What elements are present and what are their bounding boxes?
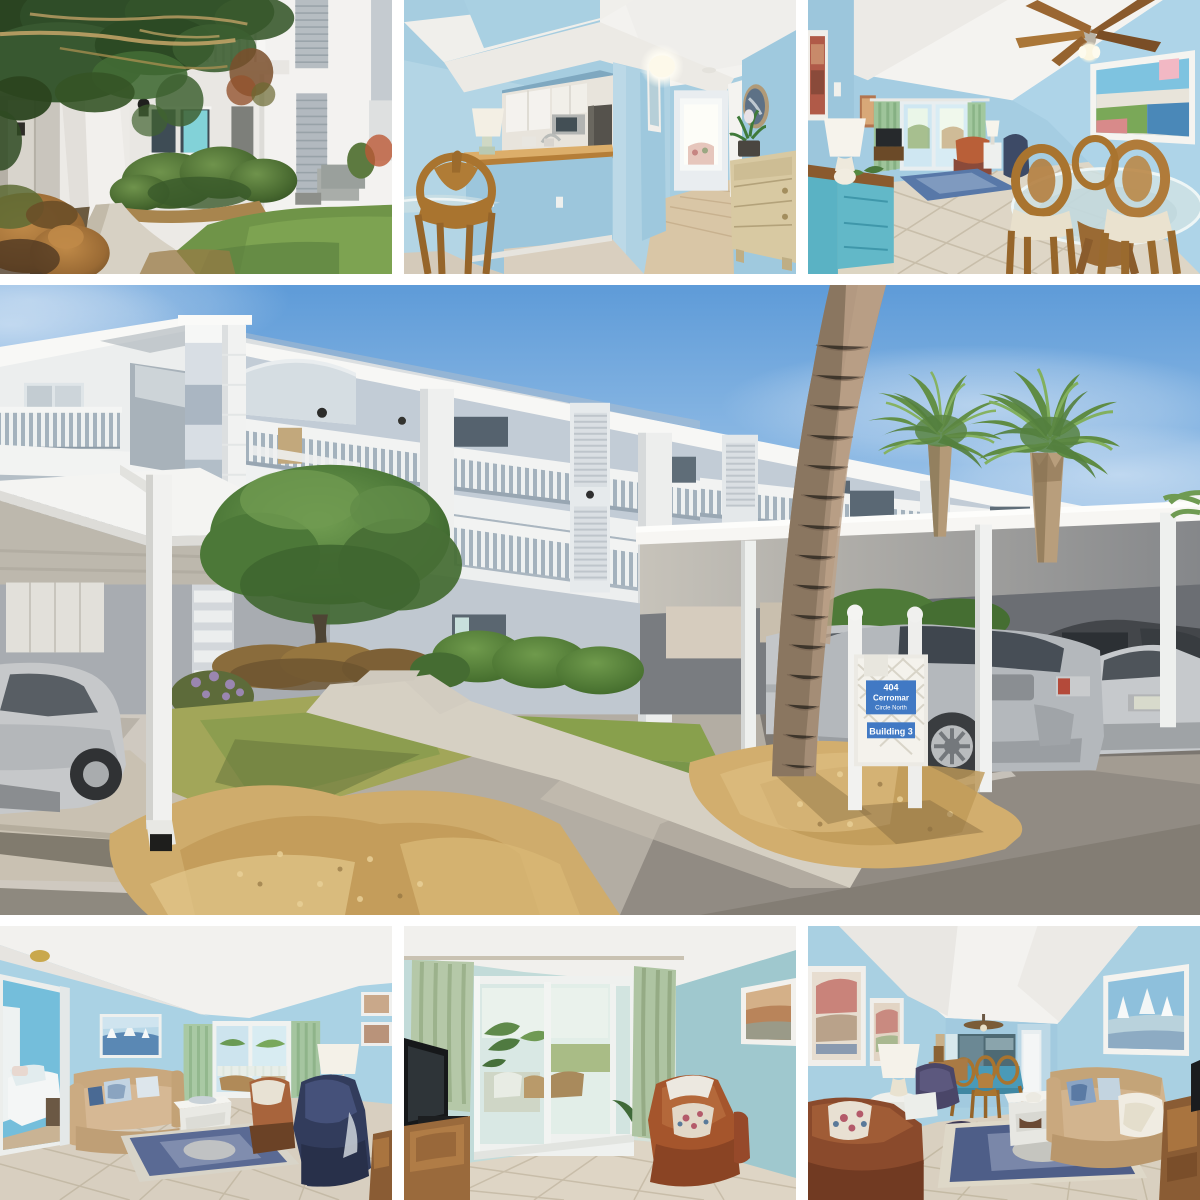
svg-text:Circle North: Circle North bbox=[875, 705, 907, 711]
svg-text:404: 404 bbox=[883, 682, 898, 692]
svg-text:Building 3: Building 3 bbox=[869, 726, 912, 736]
svg-text:Cerromar: Cerromar bbox=[873, 693, 909, 702]
